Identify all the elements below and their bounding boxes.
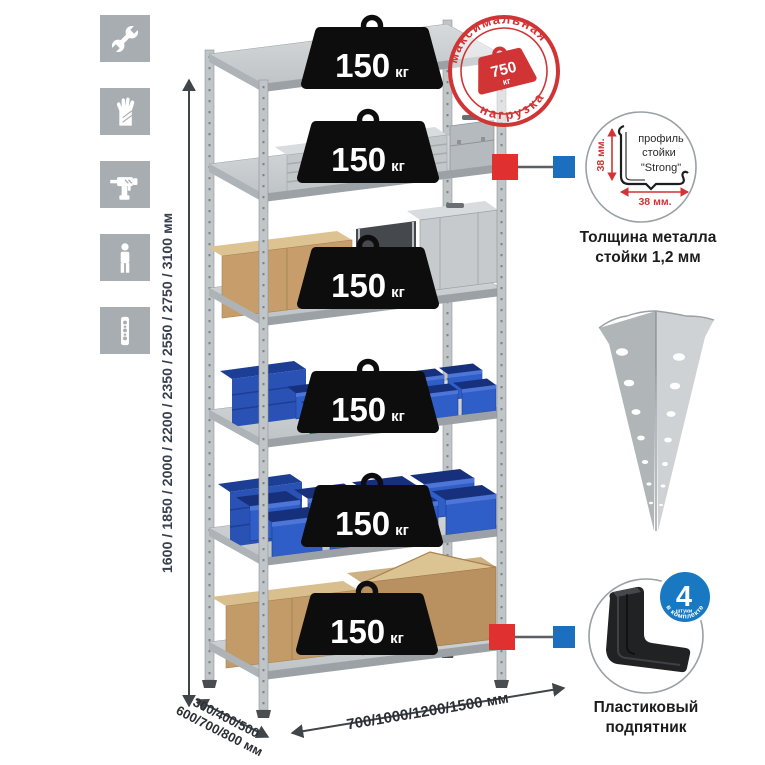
profile-caption: Толщина металла стойки 1,2 мм <box>580 229 717 266</box>
marker-red-top <box>492 154 518 180</box>
height-label: 1600 / 1850 / 2000 / 2200 / 2350 / 2550 … <box>160 213 176 573</box>
foot-caption-line1: Пластиковый <box>594 699 699 716</box>
callout-top <box>492 154 575 180</box>
post-back-left <box>202 50 217 688</box>
product-infographic: 150кг 1600 / 1850 / 2000 / 2200 / 2350 /… <box>0 0 765 765</box>
max-load-stamp: максимальная нагрузка 750 кг <box>436 0 570 137</box>
height-dimension: 1600 / 1850 / 2000 / 2200 / 2350 / 2550 … <box>160 80 189 706</box>
angle-post-graphic <box>599 311 714 531</box>
profile-label-line2: стойки <box>642 147 676 159</box>
kit-badge: 4 штуки в комплекте <box>659 571 712 624</box>
profile-caption-line2: стойки 1,2 мм <box>595 249 700 266</box>
foot-caption: Пластиковый подпятник <box>594 699 699 736</box>
marker-red-bottom <box>489 624 515 650</box>
foot-caption-line2: подпятник <box>605 719 686 736</box>
load-badge-2 <box>302 112 434 179</box>
profile-detail: профиль стойки "Strong" 38 мм. 38 мм. <box>586 112 696 222</box>
callout-bottom <box>489 624 575 650</box>
profile-label-line3: "Strong" <box>641 162 681 174</box>
load-badge-6 <box>301 584 433 651</box>
marker-blue-top <box>553 156 575 178</box>
rack-diagram: 150кг 1600 / 1850 / 2000 / 2200 / 2350 /… <box>0 0 765 765</box>
load-badge-4 <box>302 362 434 429</box>
width-label: 700/1000/1200/1500 мм <box>345 690 510 734</box>
svg-text:38 мм.: 38 мм. <box>595 138 607 171</box>
profile-caption-line1: Толщина металла <box>580 229 717 246</box>
marker-blue-bottom <box>553 626 575 648</box>
load-badge-1 <box>306 18 438 85</box>
svg-text:38 мм.: 38 мм. <box>638 196 671 208</box>
foot-detail: 4 штуки в комплекте <box>589 571 712 694</box>
profile-label-line1: профиль <box>638 133 684 145</box>
width-dimension: 700/1000/1200/1500 мм <box>292 688 564 733</box>
load-badge-3 <box>302 238 434 305</box>
load-badge-5 <box>306 476 438 543</box>
